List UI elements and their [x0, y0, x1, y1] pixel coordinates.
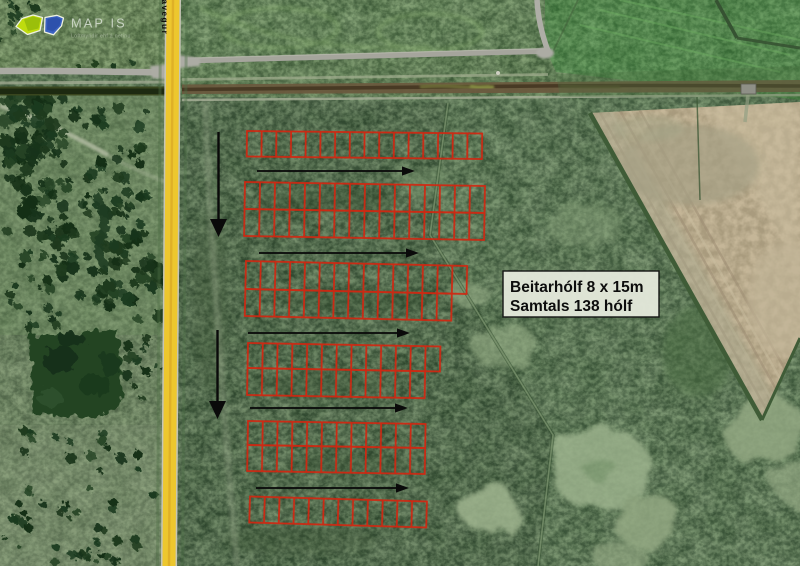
- svg-text:Samtals 138 hólf: Samtals 138 hólf: [510, 298, 633, 315]
- svg-text:Beitarhólf 8 x 15m: Beitarhólf 8 x 15m: [510, 279, 644, 296]
- svg-text:MAP IS: MAP IS: [71, 16, 127, 31]
- svg-text:Loftmyndir ehf á netinu: Loftmyndir ehf á netinu: [71, 34, 131, 40]
- svg-text:Þingvallavegur: Þingvallavegur: [160, 0, 169, 35]
